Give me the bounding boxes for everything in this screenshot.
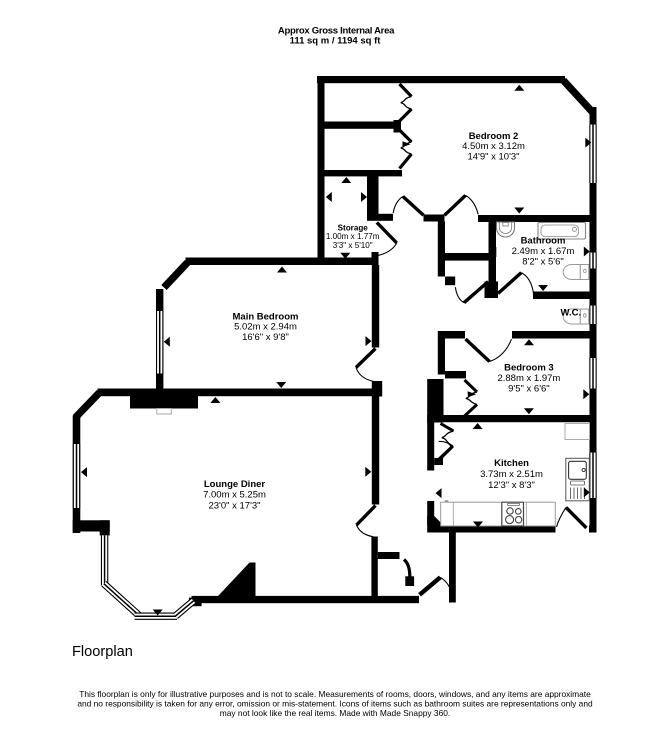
svg-text:Bedroom 2: Bedroom 2 (469, 131, 519, 142)
svg-text:23'0" x 17'3": 23'0" x 17'3" (208, 501, 260, 512)
svg-text:Bathroom: Bathroom (521, 235, 566, 246)
svg-text:2.49m x 1.67m: 2.49m x 1.67m (512, 246, 575, 257)
svg-text:and no responsibility is taken: and no responsibility is taken for any e… (77, 699, 593, 709)
svg-text:1.00m x 1.77m: 1.00m x 1.77m (326, 232, 380, 241)
svg-text:3.73m x 2.51m: 3.73m x 2.51m (480, 469, 543, 480)
svg-text:2.88m x 1.97m: 2.88m x 1.97m (497, 373, 560, 384)
svg-text:Floorplan: Floorplan (72, 644, 133, 660)
svg-text:8'2" x 5'6": 8'2" x 5'6" (522, 257, 564, 268)
svg-text:12'3" x 8'3": 12'3" x 8'3" (488, 480, 535, 491)
svg-text:111 sq m / 1194 sq ft: 111 sq m / 1194 sq ft (290, 36, 382, 47)
svg-text:7.00m x 5.25m: 7.00m x 5.25m (203, 490, 266, 501)
svg-text:14'9" x 10'3": 14'9" x 10'3" (467, 152, 519, 163)
svg-text:This floorplan is only for ill: This floorplan is only for illustrative … (79, 689, 591, 699)
svg-text:may not look like the real ite: may not look like the real items. Made w… (220, 708, 450, 718)
svg-text:W.C.: W.C. (561, 308, 582, 319)
svg-text:9'5" x 6'6": 9'5" x 6'6" (508, 384, 550, 395)
svg-text:16'6" x 9'8": 16'6" x 9'8" (242, 332, 289, 343)
svg-text:Storage: Storage (338, 224, 369, 233)
svg-text:Lounge Diner: Lounge Diner (204, 479, 266, 490)
svg-text:Bedroom 3: Bedroom 3 (504, 362, 554, 373)
svg-text:Kitchen: Kitchen (494, 458, 529, 469)
svg-text:3'3" x 5'10": 3'3" x 5'10" (333, 241, 373, 250)
